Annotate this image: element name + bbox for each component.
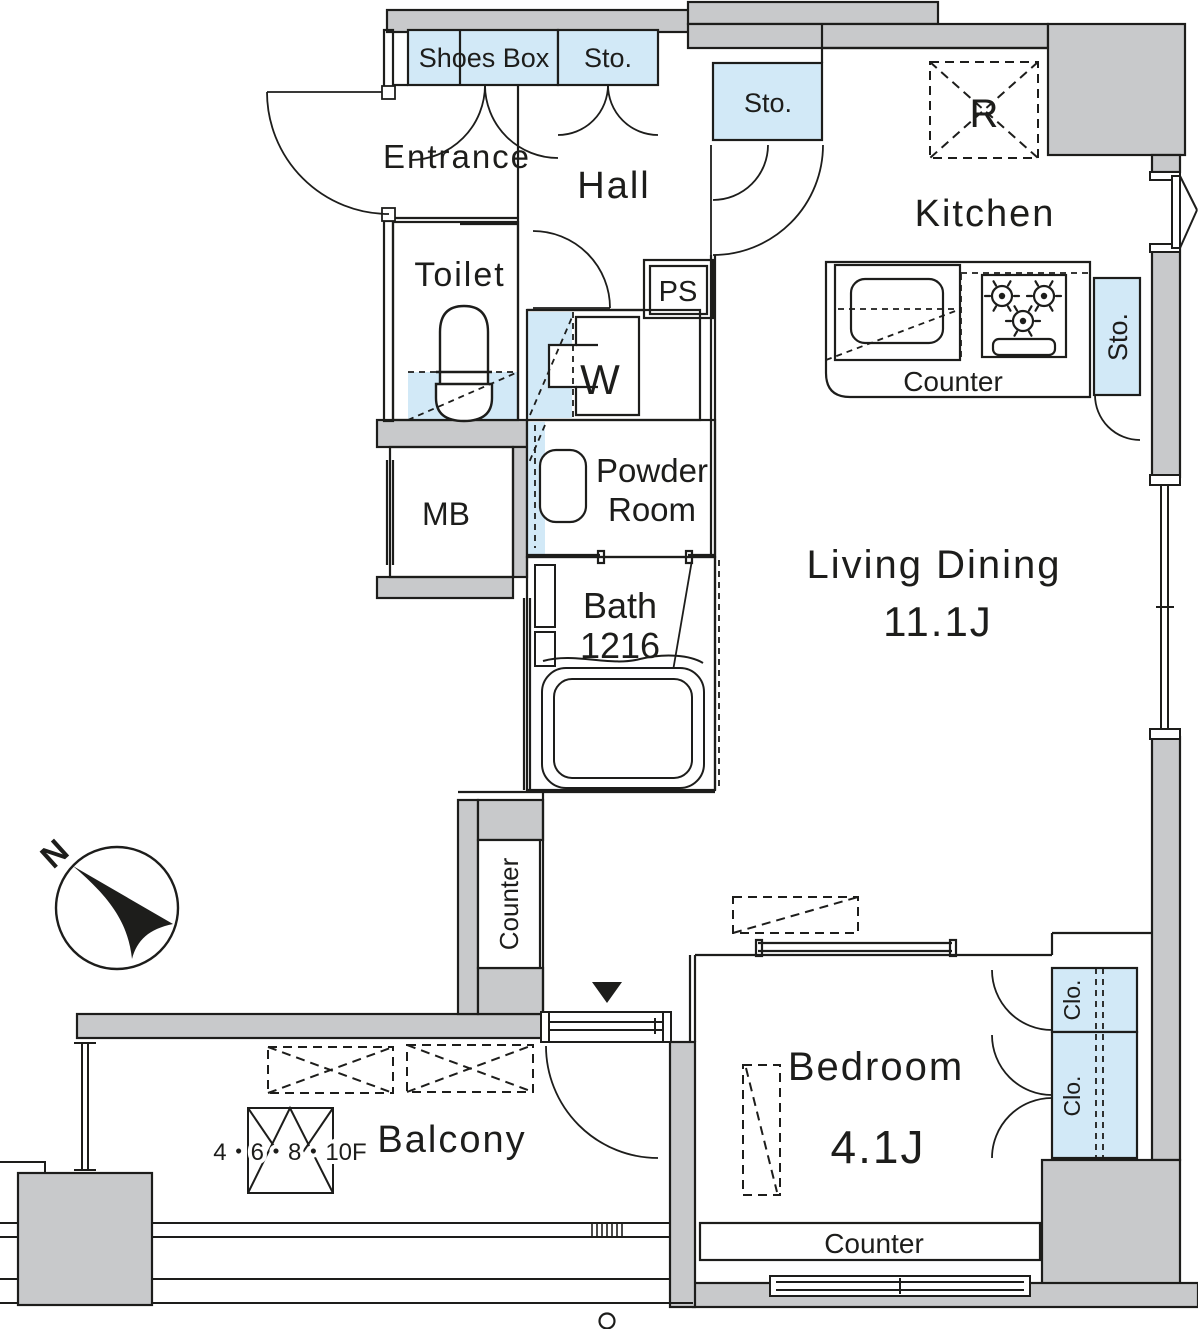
floor-plan: Shoes Box Sto. Sto. Entrance Hall Kitche… [0, 0, 1198, 1329]
wall [478, 800, 543, 840]
label-storage: Sto. [744, 88, 792, 118]
label-storage: Sto. [1103, 313, 1133, 361]
toilet-fixture [436, 306, 492, 421]
north-compass [56, 847, 178, 969]
wall [1152, 155, 1180, 172]
label-storage: Sto. [584, 43, 632, 73]
living-window [1150, 475, 1180, 739]
label-hall: Hall [577, 165, 650, 207]
label-bath-size: 1216 [580, 625, 660, 666]
wall [1152, 737, 1180, 1160]
label-shoes-box: Shoes Box [419, 43, 550, 73]
kitchen-door [1150, 172, 1197, 252]
wall [1042, 1160, 1180, 1285]
entry-marker-triangle [592, 982, 622, 1003]
door-post [382, 86, 395, 99]
label-counter: Counter [903, 366, 1003, 397]
label-kitchen: Kitchen [915, 193, 1056, 235]
label-toilet: Toilet [414, 256, 505, 294]
labels: Shoes Box Sto. Sto. Entrance Hall Kitche… [33, 43, 1133, 1259]
door-swings [267, 85, 1140, 1158]
label-living-size: 11.1J [883, 598, 993, 645]
entrance-door-arc [267, 92, 389, 214]
living-door-arc [713, 145, 823, 255]
balcony-pillar [18, 1173, 152, 1305]
storage-door-arc [608, 85, 658, 135]
label-closet: Clo. [1059, 1076, 1085, 1117]
closet-door-arc [992, 970, 1052, 1030]
kitchen-sink [851, 279, 943, 343]
label-refrigerator: R [970, 92, 999, 136]
balcony-partition [74, 1043, 96, 1170]
label-balcony: Balcony [377, 1119, 526, 1161]
balcony-door-arc [546, 1046, 658, 1158]
label-pipe-space: PS [659, 276, 698, 308]
wall [377, 577, 513, 598]
label-entrance: Entrance [383, 138, 531, 175]
wall [670, 1042, 695, 1307]
wall [513, 447, 527, 577]
label-bedroom: Bedroom [788, 1045, 964, 1089]
floor-plan-canvas: Shoes Box Sto. Sto. Entrance Hall Kitche… [0, 0, 1198, 1329]
wall [478, 968, 543, 1014]
label-powder-room: Room [608, 491, 696, 528]
label-living-dining: Living Dining [806, 543, 1061, 587]
wall [688, 2, 938, 24]
hall-door-arc [533, 231, 610, 308]
closet-door-arc [992, 1035, 1052, 1095]
label-closet: Clo. [1059, 980, 1085, 1021]
storage-door-arc [1095, 395, 1140, 440]
label-counter: Counter [494, 857, 524, 950]
label-powder-room: Powder [596, 452, 708, 489]
label-floor-range: 4・6・8・10F [213, 1139, 366, 1166]
wall [77, 1014, 545, 1038]
label-washer: W [580, 356, 620, 403]
wall [1152, 248, 1180, 477]
wall [387, 10, 690, 32]
closet-door-arc [992, 1098, 1052, 1158]
label-meter-box: MB [422, 496, 470, 532]
storage-door-arc [713, 145, 768, 200]
drain-hatch-icon [592, 1224, 622, 1236]
wall [688, 24, 1048, 48]
label-bath: Bath [583, 585, 657, 626]
wall [458, 800, 478, 1014]
wall [377, 420, 527, 447]
survey-point-icon [600, 1314, 615, 1329]
storage-door-arc [558, 85, 608, 135]
label-counter: Counter [824, 1228, 924, 1259]
balcony-sliding-door [541, 1012, 671, 1042]
label-bedroom-size: 4.1J [831, 1121, 926, 1173]
wall [1048, 24, 1185, 155]
powder-basin [540, 450, 586, 522]
bedroom-window [770, 1276, 1030, 1296]
